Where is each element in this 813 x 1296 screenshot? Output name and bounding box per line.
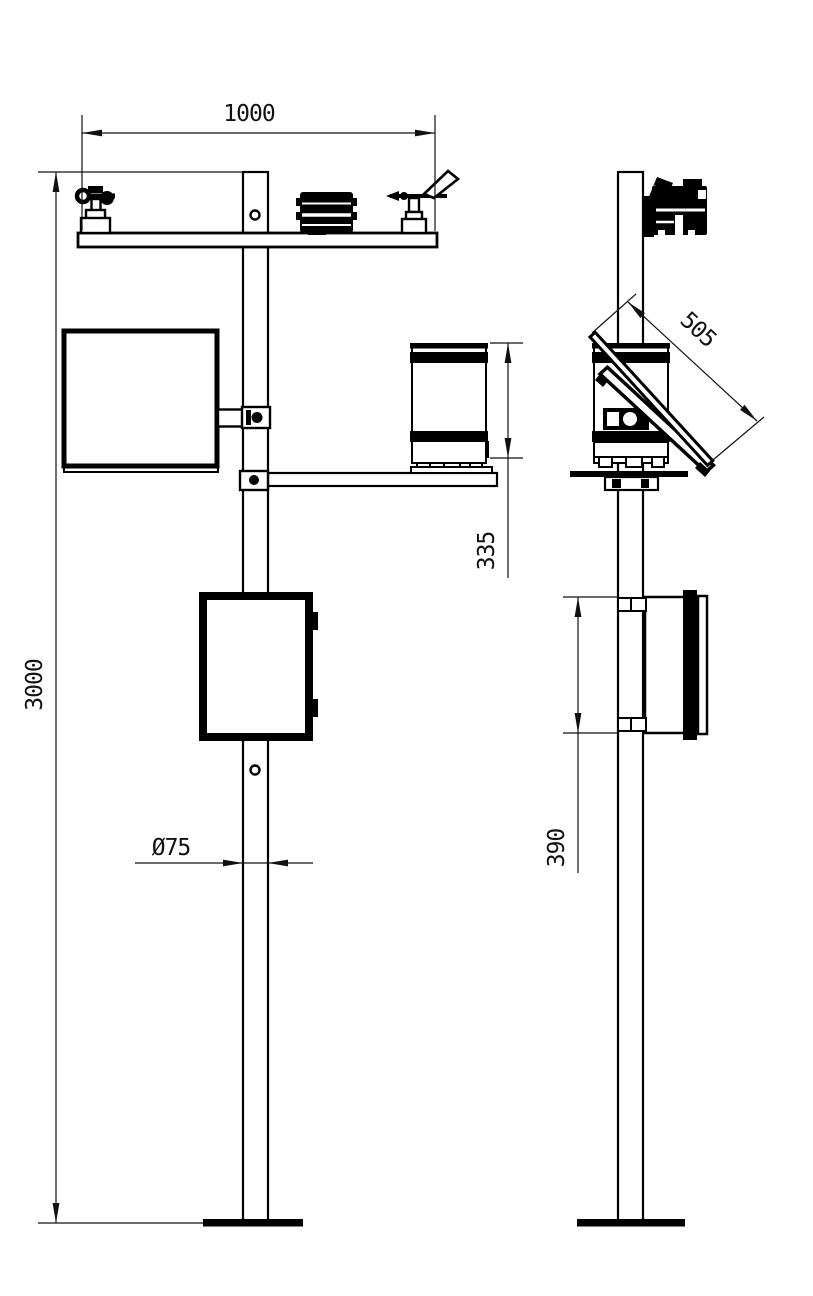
radiation-shield bbox=[296, 192, 357, 235]
dimension-label-335: 335 bbox=[474, 532, 500, 571]
arrowhead bbox=[223, 860, 243, 867]
side-sensor-cluster bbox=[643, 177, 707, 237]
arrowhead bbox=[505, 438, 512, 458]
dimension-pole-diameter: Ø75 bbox=[135, 835, 313, 866]
front-base-plate bbox=[203, 1219, 303, 1227]
hinge-top bbox=[311, 612, 318, 630]
front-view bbox=[64, 171, 497, 1227]
arrowhead bbox=[740, 405, 757, 421]
dimension-label-505: 505 bbox=[675, 307, 721, 352]
arrowhead bbox=[415, 130, 435, 137]
dimension-label-390: 390 bbox=[544, 829, 570, 868]
dimension-label-1000: 1000 bbox=[223, 101, 275, 127]
dimension-label-3000: 3000 bbox=[22, 659, 48, 711]
side-pole bbox=[618, 172, 643, 1222]
dimension-label-75: Ø75 bbox=[152, 835, 191, 861]
arrowhead bbox=[505, 343, 512, 363]
arrowhead bbox=[575, 713, 582, 733]
front-crossarm bbox=[78, 233, 437, 247]
arrowhead bbox=[82, 130, 102, 137]
control-box-front bbox=[203, 596, 318, 737]
arrowhead bbox=[575, 597, 582, 617]
pole-hole-top bbox=[251, 211, 260, 220]
rain-gauge-front bbox=[410, 343, 492, 473]
drawing-sheet: 1000 3000 335 Ø75 505 bbox=[0, 0, 813, 1296]
arrowhead bbox=[268, 860, 288, 867]
pole-hole-bottom bbox=[251, 766, 260, 775]
wind-vane bbox=[386, 171, 458, 233]
arrowhead bbox=[53, 1203, 60, 1223]
anemometer bbox=[77, 186, 115, 233]
solar-panel-bracket bbox=[218, 407, 270, 428]
solar-panel-front bbox=[64, 331, 218, 472]
side-base-plate bbox=[577, 1219, 685, 1227]
side-shelf bbox=[570, 471, 688, 490]
arrowhead bbox=[53, 172, 60, 192]
dimension-control-box-height: 390 bbox=[544, 597, 618, 873]
hinge-bottom bbox=[311, 699, 318, 717]
